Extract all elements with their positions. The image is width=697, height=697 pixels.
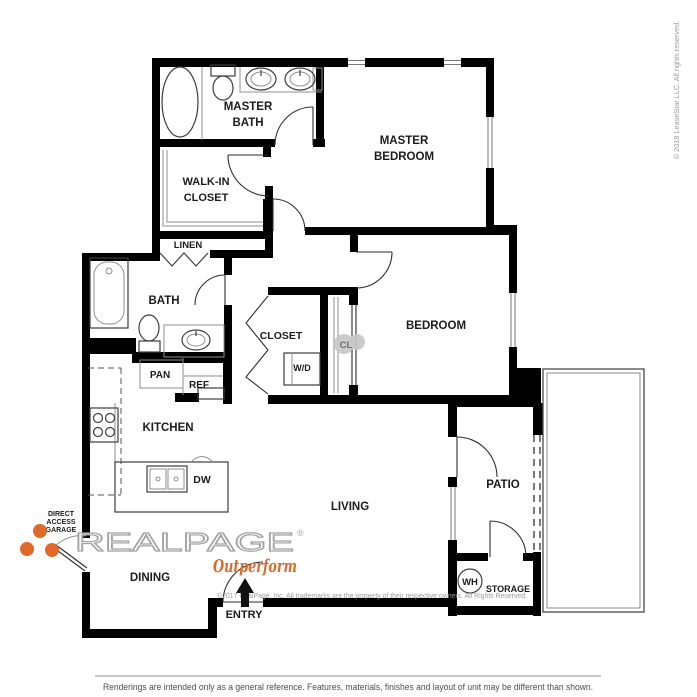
patio-screen-dashed <box>534 435 540 552</box>
label-master-bath-line1: MASTER <box>224 101 273 113</box>
label-dw: DW <box>193 474 211 486</box>
master-bath-toilet-icon <box>211 65 235 100</box>
label-bedroom: BEDROOM <box>406 320 466 332</box>
bath-door <box>195 275 225 305</box>
patio-door <box>457 437 497 477</box>
window-top-2 <box>444 58 461 67</box>
stove-icon <box>90 408 118 442</box>
footer: Renderings are intended only as a genera… <box>95 675 601 692</box>
label-ref: REF <box>189 380 209 391</box>
label-walk-in-closet-line2: CLOSET <box>184 192 229 204</box>
label-dining: DINING <box>130 572 170 584</box>
label-linen: LINEN <box>174 240 203 251</box>
label-master-bedroom-line2: BEDROOM <box>374 151 434 163</box>
windows <box>348 58 540 552</box>
label-garage-line2: ACCESS <box>46 519 76 526</box>
label-living: LIVING <box>331 501 369 513</box>
storage-door <box>490 521 526 557</box>
side-copyright-note: © 2018 LeaseStar LLC. All rights reserve… <box>672 21 681 159</box>
bath-toilet-icon <box>139 315 160 352</box>
master-bath-vanity-icon <box>240 67 322 92</box>
bath-tub-icon <box>90 258 128 328</box>
watermark-copyright: ©2017 RealPage, Inc. All trademarks are … <box>217 591 527 600</box>
label-closet: CLOSET <box>260 330 303 342</box>
window-bedroom <box>509 293 517 347</box>
island-sink-icon <box>147 466 187 492</box>
label-patio: PATIO <box>486 479 519 491</box>
hall-closet-bifold-door <box>246 296 268 394</box>
kitchen-island-outline <box>115 457 228 513</box>
label-master-bedroom-line1: MASTER <box>380 135 429 147</box>
label-bath: BATH <box>148 295 179 307</box>
label-wd: W/D <box>293 363 311 373</box>
floorplan-image: REALPAGE ® Outperform ©2017 RealPage, In… <box>0 0 697 697</box>
label-cl: CL <box>340 340 353 351</box>
footer-disclaimer: Renderings are intended only as a genera… <box>103 682 593 692</box>
window-master-bedroom <box>486 117 494 168</box>
label-storage: STORAGE <box>486 584 530 594</box>
label-wh: WH <box>462 577 478 588</box>
label-garage-line3: GARAGE <box>46 527 77 534</box>
watermark-tagline: Outperform <box>213 556 297 577</box>
master-bath-door <box>275 107 313 145</box>
walk-in-closet-door <box>228 155 269 196</box>
entry-arrow-icon <box>236 578 254 607</box>
master-bath-tub-icon <box>162 67 202 140</box>
label-garage-line1: DIRECT <box>48 511 75 518</box>
bedroom-door <box>356 252 392 288</box>
label-pan: PAN <box>150 370 170 381</box>
window-top-1 <box>348 58 365 67</box>
window-living-patio <box>449 487 457 540</box>
label-kitchen: KITCHEN <box>142 422 193 434</box>
watermark-brand: REALPAGE <box>75 527 294 557</box>
label-master-bath-line2: BATH <box>232 117 263 129</box>
footer-divider <box>95 675 601 677</box>
exterior-slab-outline <box>543 369 644 612</box>
floorplan-svg: REALPAGE ® Outperform ©2017 RealPage, In… <box>0 0 697 697</box>
label-entry: ENTRY <box>226 609 264 621</box>
label-walk-in-closet-line1: WALK-IN <box>182 176 229 188</box>
walk-in-closet-shelves <box>163 150 263 226</box>
watermark-registered-icon: ® <box>297 528 304 538</box>
master-bedroom-door <box>273 199 305 231</box>
linen-bifold-door <box>160 253 208 266</box>
